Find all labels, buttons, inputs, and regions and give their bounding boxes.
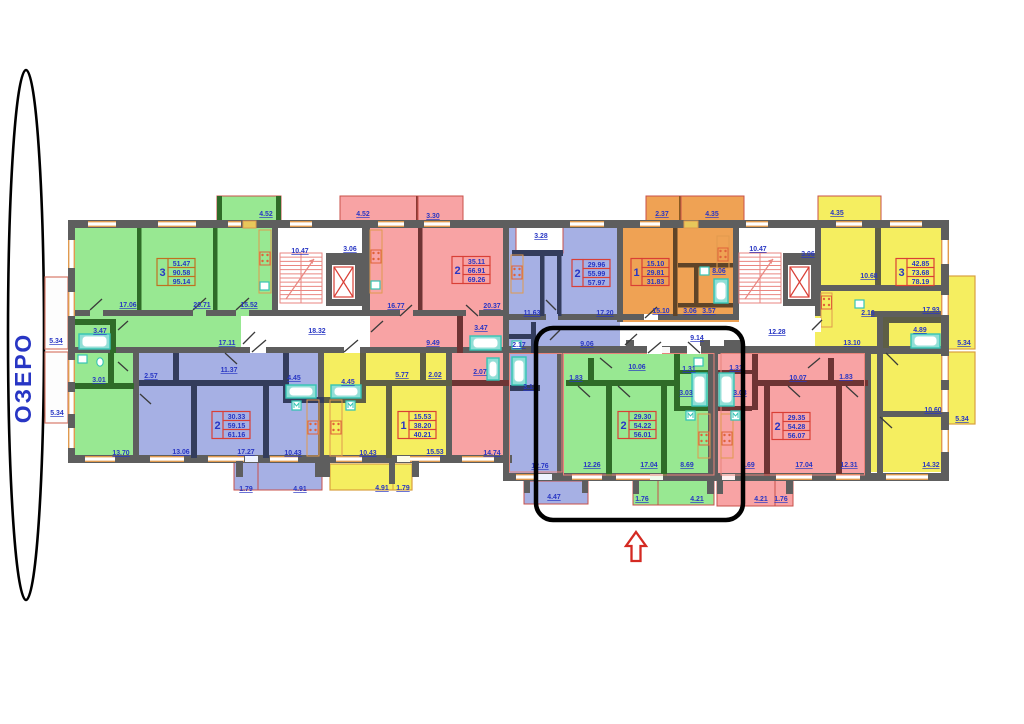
svg-text:56.01: 56.01 xyxy=(634,432,652,439)
svg-text:5.34: 5.34 xyxy=(50,410,64,417)
svg-text:4.35: 4.35 xyxy=(830,210,844,217)
svg-text:1.79: 1.79 xyxy=(239,486,253,493)
svg-text:1.76: 1.76 xyxy=(774,496,788,503)
svg-text:4.91: 4.91 xyxy=(375,485,389,492)
svg-text:4.52: 4.52 xyxy=(356,211,370,218)
svg-text:2.37: 2.37 xyxy=(655,211,669,218)
svg-text:4.21: 4.21 xyxy=(690,496,704,503)
svg-text:3.57: 3.57 xyxy=(702,308,716,315)
svg-text:1: 1 xyxy=(400,420,406,432)
svg-text:4.21: 4.21 xyxy=(754,496,768,503)
svg-text:1.76: 1.76 xyxy=(635,496,649,503)
svg-text:1.83: 1.83 xyxy=(569,375,583,382)
svg-text:3.30: 3.30 xyxy=(426,213,440,220)
svg-text:15.53: 15.53 xyxy=(414,414,432,421)
svg-text:2: 2 xyxy=(214,420,220,432)
svg-text:51.47: 51.47 xyxy=(173,261,191,268)
svg-text:3: 3 xyxy=(159,267,165,279)
svg-text:1: 1 xyxy=(633,267,639,279)
svg-text:15.52: 15.52 xyxy=(240,302,257,309)
svg-text:15.53: 15.53 xyxy=(426,449,443,456)
svg-text:12.28: 12.28 xyxy=(768,329,785,336)
svg-text:4.47: 4.47 xyxy=(547,494,561,501)
svg-text:10.07: 10.07 xyxy=(789,375,806,382)
svg-text:17.93: 17.93 xyxy=(922,307,939,314)
svg-text:20.37: 20.37 xyxy=(483,303,500,310)
svg-text:17.04: 17.04 xyxy=(795,462,812,469)
svg-text:54.28: 54.28 xyxy=(788,424,806,431)
svg-text:59.15: 59.15 xyxy=(228,423,246,430)
svg-text:4.45: 4.45 xyxy=(341,379,355,386)
svg-text:ОЗЕРО: ОЗЕРО xyxy=(10,333,36,424)
svg-text:42.85: 42.85 xyxy=(912,261,930,268)
svg-text:12.31: 12.31 xyxy=(840,462,857,469)
svg-text:1.83: 1.83 xyxy=(839,374,853,381)
svg-text:3.01: 3.01 xyxy=(92,377,106,384)
svg-text:10.47: 10.47 xyxy=(291,248,308,255)
svg-text:18.32: 18.32 xyxy=(308,328,325,335)
svg-text:69.26: 69.26 xyxy=(468,277,486,284)
svg-text:9.49: 9.49 xyxy=(426,340,440,347)
svg-text:20.71: 20.71 xyxy=(193,302,210,309)
svg-text:4.52: 4.52 xyxy=(259,211,273,218)
svg-text:2.57: 2.57 xyxy=(144,373,158,380)
svg-text:3.03: 3.03 xyxy=(679,390,693,397)
svg-text:31.83: 31.83 xyxy=(647,279,665,286)
svg-text:14.74: 14.74 xyxy=(483,450,500,457)
svg-text:2: 2 xyxy=(574,268,580,280)
svg-text:8.69: 8.69 xyxy=(680,462,694,469)
svg-text:11.37: 11.37 xyxy=(221,367,238,374)
svg-text:4.35: 4.35 xyxy=(705,211,719,218)
svg-text:2.17: 2.17 xyxy=(512,342,526,349)
svg-text:2: 2 xyxy=(774,421,780,433)
svg-text:5.77: 5.77 xyxy=(395,372,409,379)
svg-text:10.47: 10.47 xyxy=(749,246,766,253)
svg-text:10.68: 10.68 xyxy=(860,273,877,280)
svg-text:10.43: 10.43 xyxy=(284,450,301,457)
svg-text:66.91: 66.91 xyxy=(468,268,486,275)
svg-text:2.16: 2.16 xyxy=(861,310,875,317)
svg-text:2: 2 xyxy=(454,265,460,277)
svg-text:78.19: 78.19 xyxy=(912,279,930,286)
svg-text:1.31: 1.31 xyxy=(682,366,696,373)
svg-text:4.91: 4.91 xyxy=(293,486,307,493)
svg-text:9.06: 9.06 xyxy=(580,341,594,348)
svg-text:13.70: 13.70 xyxy=(112,450,129,457)
svg-text:17.06: 17.06 xyxy=(119,302,136,309)
svg-text:29.96: 29.96 xyxy=(588,262,606,269)
svg-text:15.10: 15.10 xyxy=(647,261,665,268)
svg-text:4.89: 4.89 xyxy=(913,327,927,334)
svg-text:17.27: 17.27 xyxy=(237,449,254,456)
svg-text:90.58: 90.58 xyxy=(173,270,191,277)
svg-text:56.07: 56.07 xyxy=(788,433,806,440)
svg-text:10.43: 10.43 xyxy=(359,450,376,457)
svg-text:57.97: 57.97 xyxy=(588,280,606,287)
svg-text:5.34: 5.34 xyxy=(49,338,63,345)
svg-text:17.04: 17.04 xyxy=(640,462,657,469)
svg-text:2.02: 2.02 xyxy=(428,372,442,379)
svg-text:1.79: 1.79 xyxy=(396,485,410,492)
svg-text:15.10: 15.10 xyxy=(652,308,669,315)
svg-text:2: 2 xyxy=(620,420,626,432)
svg-text:61.16: 61.16 xyxy=(228,432,246,439)
svg-text:3.06: 3.06 xyxy=(683,308,697,315)
svg-text:55.99: 55.99 xyxy=(588,271,606,278)
svg-text:29.30: 29.30 xyxy=(634,414,652,421)
svg-text:12.26: 12.26 xyxy=(583,462,600,469)
svg-text:11.63: 11.63 xyxy=(524,310,541,317)
svg-text:14.32: 14.32 xyxy=(922,462,939,469)
svg-text:73.68: 73.68 xyxy=(912,270,930,277)
svg-text:38.20: 38.20 xyxy=(414,423,432,430)
svg-text:3.28: 3.28 xyxy=(534,233,548,240)
svg-text:10.60: 10.60 xyxy=(924,407,941,414)
svg-text:4.45: 4.45 xyxy=(287,375,301,382)
svg-text:17.20: 17.20 xyxy=(596,310,613,317)
svg-text:9.14: 9.14 xyxy=(690,335,704,342)
svg-text:3.06: 3.06 xyxy=(343,246,357,253)
svg-text:16.77: 16.77 xyxy=(387,303,404,310)
svg-text:29.81: 29.81 xyxy=(647,270,665,277)
svg-text:95.14: 95.14 xyxy=(173,279,191,286)
svg-text:17.11: 17.11 xyxy=(219,340,236,347)
svg-text:13.10: 13.10 xyxy=(843,340,860,347)
svg-text:5.34: 5.34 xyxy=(955,416,969,423)
svg-text:3.47: 3.47 xyxy=(474,325,488,332)
svg-text:40.21: 40.21 xyxy=(414,432,432,439)
svg-text:13.06: 13.06 xyxy=(172,449,189,456)
svg-text:3.47: 3.47 xyxy=(93,328,107,335)
svg-text:8.06: 8.06 xyxy=(712,268,726,275)
svg-text:2.07: 2.07 xyxy=(473,369,487,376)
svg-text:10.06: 10.06 xyxy=(628,364,645,371)
svg-text:29.35: 29.35 xyxy=(788,415,806,422)
svg-text:54.22: 54.22 xyxy=(634,423,652,430)
svg-text:5.34: 5.34 xyxy=(957,340,971,347)
svg-text:3: 3 xyxy=(898,267,904,279)
svg-text:30.33: 30.33 xyxy=(228,414,246,421)
svg-text:35.11: 35.11 xyxy=(468,259,485,266)
svg-text:3.06: 3.06 xyxy=(801,251,815,258)
